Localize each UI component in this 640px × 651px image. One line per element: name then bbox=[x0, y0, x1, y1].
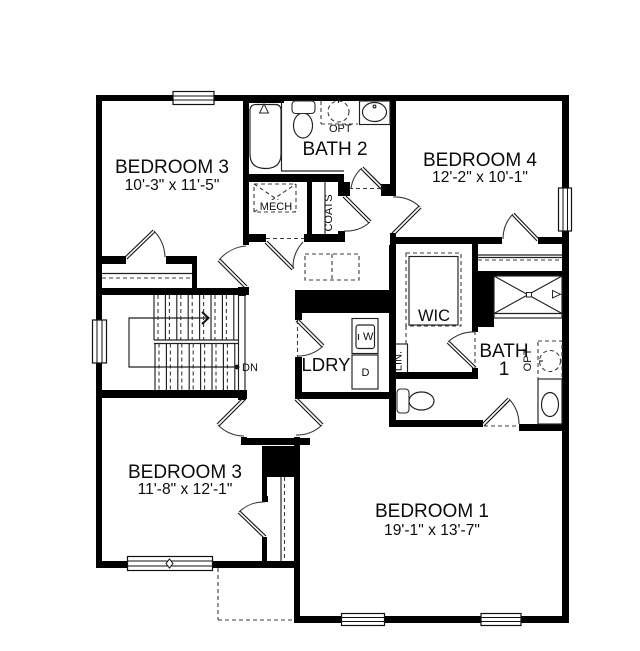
svg-text:12'-2" x 10'-1": 12'-2" x 10'-1" bbox=[432, 169, 528, 186]
svg-text:10'-3" x 11'-5": 10'-3" x 11'-5" bbox=[125, 177, 220, 194]
svg-text:OPT: OPT bbox=[329, 123, 352, 135]
svg-text:1: 1 bbox=[499, 359, 510, 380]
svg-text:19'-1" x 13'-7": 19'-1" x 13'-7" bbox=[384, 522, 480, 539]
svg-text:COATS: COATS bbox=[323, 194, 335, 231]
svg-text:W: W bbox=[363, 331, 374, 343]
svg-text:11'-8" x 12'-1": 11'-8" x 12'-1" bbox=[138, 481, 233, 498]
svg-text:WIC: WIC bbox=[418, 307, 450, 325]
svg-text:BEDROOM 4: BEDROOM 4 bbox=[423, 150, 537, 171]
svg-text:BEDROOM 3: BEDROOM 3 bbox=[115, 157, 229, 178]
svg-text:DN: DN bbox=[242, 362, 258, 374]
svg-text:LIN.: LIN. bbox=[393, 351, 405, 371]
svg-text:LDRY: LDRY bbox=[301, 354, 350, 375]
svg-text:D: D bbox=[362, 367, 370, 379]
svg-text:BEDROOM 1: BEDROOM 1 bbox=[375, 501, 489, 522]
svg-text:BATH 2: BATH 2 bbox=[302, 139, 367, 160]
svg-text:BEDROOM 3: BEDROOM 3 bbox=[128, 462, 242, 483]
svg-text:MECH: MECH bbox=[260, 201, 292, 213]
